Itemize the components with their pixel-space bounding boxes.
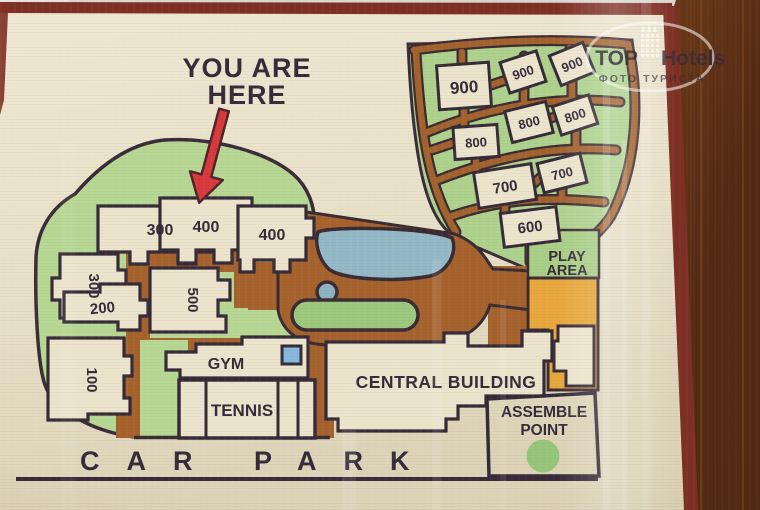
building-200-label: 200 — [89, 299, 116, 319]
map-canvas: PLAY AREA 300 300 400 400 500 200 100 90… — [0, 0, 760, 510]
building-500-label: 500 — [184, 287, 201, 312]
tennis-label: TENNIS — [211, 401, 273, 420]
building-300-upper-label: 300 — [147, 222, 174, 239]
gym-label: GYM — [208, 356, 244, 373]
central-building-label: CENTRAL BUILDING — [356, 372, 537, 392]
car-park-label: CAR PARK — [80, 446, 437, 476]
photo-resort-map: PLAY AREA 300 300 400 400 500 200 100 90… — [0, 0, 760, 510]
building-600-label: 600 — [517, 218, 544, 238]
building-400-right-label: 400 — [259, 227, 286, 244]
green-island — [292, 300, 418, 330]
car-park-line — [16, 477, 598, 481]
assemble-point-dot — [527, 440, 560, 473]
watermark-brand-left: TOP — [595, 47, 638, 70]
you-are-here-line2: HERE — [207, 80, 286, 110]
watermark-subtitle: ФОТО ТУРИСТА — [599, 73, 706, 85]
building-800-left-label: 800 — [465, 134, 488, 150]
pool-square — [282, 346, 301, 364]
watermark-brand-right: Hotels — [661, 47, 725, 70]
building-400-left-label: 400 — [193, 219, 220, 236]
you-are-here-line1: YOU ARE — [182, 53, 311, 83]
building-900-main-label: 900 — [449, 77, 479, 98]
building-300-lower-label: 300 — [85, 273, 102, 298]
building-100-label: 100 — [83, 367, 100, 392]
